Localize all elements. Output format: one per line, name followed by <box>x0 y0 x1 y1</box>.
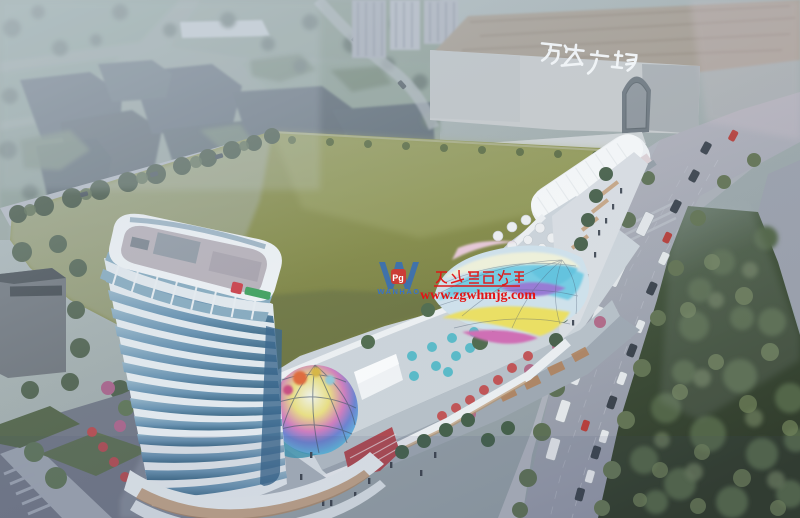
svg-text:www.zgwhmjg.com: www.zgwhmjg.com <box>420 288 536 303</box>
svg-text:Pg: Pg <box>392 273 404 283</box>
svg-text:WANHAO: WANHAO <box>377 287 420 296</box>
